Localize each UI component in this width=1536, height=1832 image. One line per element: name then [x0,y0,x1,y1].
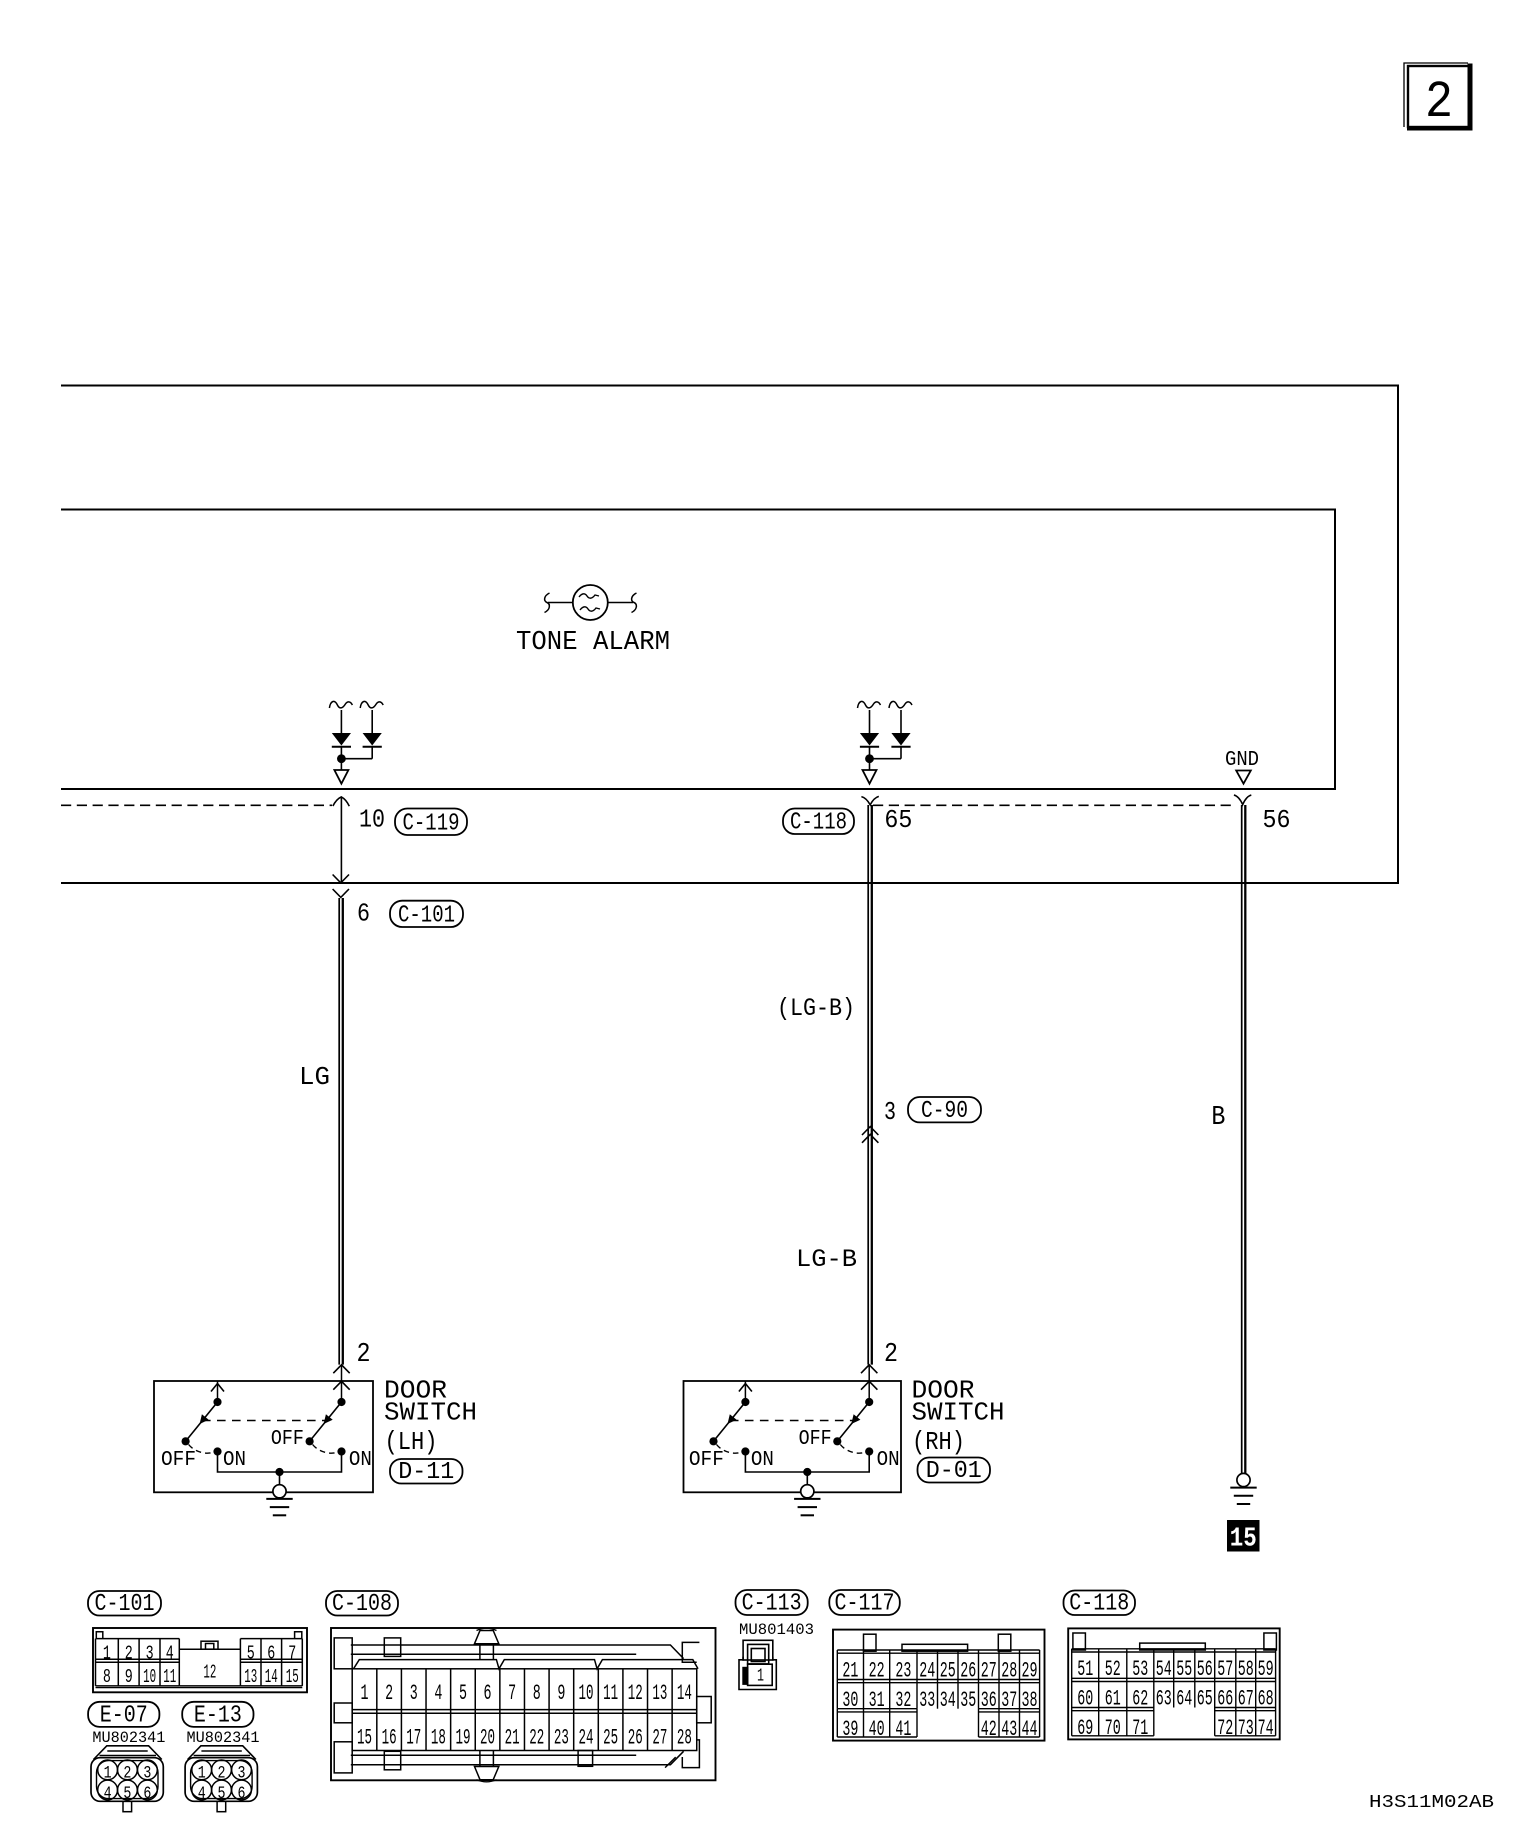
svg-text:MU801403: MU801403 [739,1621,814,1639]
svg-text:1: 1 [104,1763,112,1783]
svg-text:10: 10 [143,1666,156,1688]
svg-text:29: 29 [1022,1658,1038,1683]
svg-text:72: 72 [1217,1716,1233,1741]
svg-text:23: 23 [895,1658,911,1683]
svg-text:15: 15 [286,1666,299,1688]
svg-text:ON: ON [223,1449,246,1472]
svg-text:13: 13 [244,1666,257,1688]
svg-text:OFF: OFF [271,1428,304,1451]
svg-text:SWITCH: SWITCH [912,1398,1005,1428]
svg-text:63: 63 [1156,1687,1172,1712]
svg-text:11: 11 [603,1681,618,1706]
svg-text:69: 69 [1077,1716,1093,1741]
svg-text:34: 34 [940,1688,956,1713]
svg-text:2: 2 [357,1340,371,1370]
svg-text:16: 16 [382,1726,397,1751]
svg-text:(RH): (RH) [912,1427,965,1457]
svg-text:2: 2 [123,1763,131,1783]
svg-text:C-117: C-117 [835,1591,895,1618]
svg-text:17: 17 [406,1726,421,1751]
svg-text:59: 59 [1258,1657,1274,1682]
svg-text:68: 68 [1258,1687,1274,1712]
svg-text:57: 57 [1217,1657,1233,1682]
svg-text:2: 2 [1425,73,1453,132]
svg-text:ON: ON [349,1449,372,1472]
svg-text:1: 1 [103,1643,111,1665]
svg-text:30: 30 [842,1688,858,1713]
svg-text:3: 3 [238,1763,246,1783]
svg-text:35: 35 [960,1688,976,1713]
svg-text:31: 31 [869,1688,885,1713]
svg-text:36: 36 [981,1688,997,1713]
svg-text:ON: ON [751,1449,774,1472]
svg-text:E-13: E-13 [194,1702,242,1729]
svg-text:32: 32 [895,1688,911,1713]
svg-text:3: 3 [143,1763,151,1783]
svg-text:(LG-B): (LG-B) [777,994,855,1023]
svg-text:6: 6 [357,899,370,929]
svg-text:5: 5 [123,1784,131,1804]
svg-text:B: B [1211,1103,1225,1133]
svg-text:23: 23 [554,1726,569,1751]
svg-text:18: 18 [431,1726,446,1751]
svg-text:6: 6 [238,1784,246,1804]
svg-text:74: 74 [1258,1716,1274,1741]
svg-text:22: 22 [869,1658,885,1683]
svg-text:2: 2 [218,1763,226,1783]
svg-text:5: 5 [247,1643,255,1665]
svg-text:1: 1 [198,1763,206,1783]
svg-text:3: 3 [884,1097,896,1127]
svg-text:7: 7 [288,1643,296,1665]
svg-text:14: 14 [677,1681,692,1706]
svg-text:OFF: OFF [161,1449,196,1472]
svg-text:2: 2 [125,1643,133,1665]
svg-text:8: 8 [103,1666,111,1688]
svg-text:5: 5 [459,1681,467,1706]
svg-text:6: 6 [143,1784,151,1804]
svg-text:10: 10 [359,805,385,835]
svg-text:54: 54 [1156,1657,1172,1682]
svg-text:SWITCH: SWITCH [384,1398,477,1428]
svg-text:71: 71 [1132,1716,1148,1741]
svg-text:E-07: E-07 [100,1702,148,1729]
svg-text:13: 13 [652,1681,667,1706]
svg-text:21: 21 [505,1726,520,1751]
svg-text:33: 33 [919,1688,935,1713]
svg-text:53: 53 [1132,1657,1148,1682]
svg-text:56: 56 [1197,1657,1213,1682]
svg-text:D-01: D-01 [926,1458,982,1485]
svg-text:C-108: C-108 [332,1591,392,1618]
svg-text:44: 44 [1022,1717,1038,1742]
svg-text:21: 21 [842,1658,858,1683]
svg-text:9: 9 [125,1666,133,1688]
svg-text:58: 58 [1238,1657,1254,1682]
svg-text:LG-B: LG-B [796,1245,857,1274]
svg-text:19: 19 [455,1726,470,1751]
svg-text:42: 42 [981,1717,997,1742]
svg-text:7: 7 [508,1681,516,1706]
svg-text:27: 27 [652,1726,667,1751]
svg-text:6: 6 [267,1643,275,1665]
svg-text:62: 62 [1132,1687,1148,1712]
svg-text:3: 3 [410,1681,418,1706]
svg-text:24: 24 [578,1726,593,1751]
svg-text:C-101: C-101 [95,1591,155,1618]
svg-text:37: 37 [1001,1688,1017,1713]
svg-text:H3S11M02AB: H3S11M02AB [1369,1793,1494,1813]
svg-text:OFF: OFF [689,1449,724,1472]
svg-text:26: 26 [628,1726,643,1751]
svg-text:20: 20 [480,1726,495,1751]
svg-text:15: 15 [357,1726,372,1751]
svg-text:65: 65 [884,805,912,835]
svg-text:C-90: C-90 [921,1098,968,1125]
svg-text:OFF: OFF [799,1428,832,1451]
svg-text:60: 60 [1077,1687,1093,1712]
svg-text:24: 24 [919,1658,935,1683]
svg-text:4: 4 [104,1784,112,1804]
svg-text:43: 43 [1001,1717,1017,1742]
svg-text:65: 65 [1197,1687,1213,1712]
svg-text:6: 6 [484,1681,492,1706]
svg-text:61: 61 [1105,1687,1121,1712]
svg-text:4: 4 [198,1784,206,1804]
svg-text:41: 41 [895,1717,911,1742]
svg-text:5: 5 [218,1784,226,1804]
svg-text:27: 27 [981,1658,997,1683]
svg-text:3: 3 [146,1643,154,1665]
svg-text:9: 9 [557,1681,565,1706]
svg-text:4: 4 [434,1681,442,1706]
svg-text:11: 11 [163,1666,176,1688]
svg-text:56: 56 [1263,805,1291,835]
svg-text:66: 66 [1217,1687,1233,1712]
svg-text:TONE ALARM: TONE ALARM [516,628,670,658]
svg-text:LG: LG [299,1062,330,1092]
svg-text:52: 52 [1105,1657,1121,1682]
svg-text:25: 25 [603,1726,618,1751]
svg-text:(LH): (LH) [385,1427,438,1457]
svg-text:22: 22 [529,1726,544,1751]
svg-text:1: 1 [361,1681,369,1706]
svg-text:25: 25 [940,1658,956,1683]
svg-text:70: 70 [1105,1716,1121,1741]
svg-text:12: 12 [628,1681,643,1706]
svg-text:73: 73 [1238,1716,1254,1741]
svg-text:C-118: C-118 [1069,1591,1129,1618]
svg-text:12: 12 [203,1662,216,1684]
svg-text:C-101: C-101 [398,903,455,930]
svg-text:1: 1 [757,1667,764,1687]
svg-text:28: 28 [677,1726,692,1751]
svg-text:4: 4 [166,1643,174,1665]
svg-text:67: 67 [1238,1687,1254,1712]
svg-text:2: 2 [884,1340,898,1370]
svg-text:MU802341: MU802341 [187,1729,260,1747]
svg-text:39: 39 [842,1717,858,1742]
svg-text:26: 26 [960,1658,976,1683]
svg-text:15: 15 [1230,1525,1257,1555]
svg-text:C-118: C-118 [790,810,847,837]
svg-text:C-113: C-113 [742,1591,802,1618]
svg-text:10: 10 [578,1681,593,1706]
svg-text:GND: GND [1225,749,1259,772]
svg-text:C-119: C-119 [403,811,460,838]
svg-text:51: 51 [1077,1657,1093,1682]
svg-text:ON: ON [877,1449,900,1472]
svg-text:2: 2 [385,1681,393,1706]
svg-text:8: 8 [533,1681,541,1706]
svg-text:D-11: D-11 [398,1459,454,1486]
svg-text:64: 64 [1176,1687,1192,1712]
svg-text:38: 38 [1022,1688,1038,1713]
svg-text:40: 40 [869,1717,885,1742]
svg-text:14: 14 [265,1666,278,1688]
svg-text:MU802341: MU802341 [92,1729,165,1747]
svg-text:55: 55 [1176,1657,1192,1682]
svg-text:28: 28 [1001,1658,1017,1683]
